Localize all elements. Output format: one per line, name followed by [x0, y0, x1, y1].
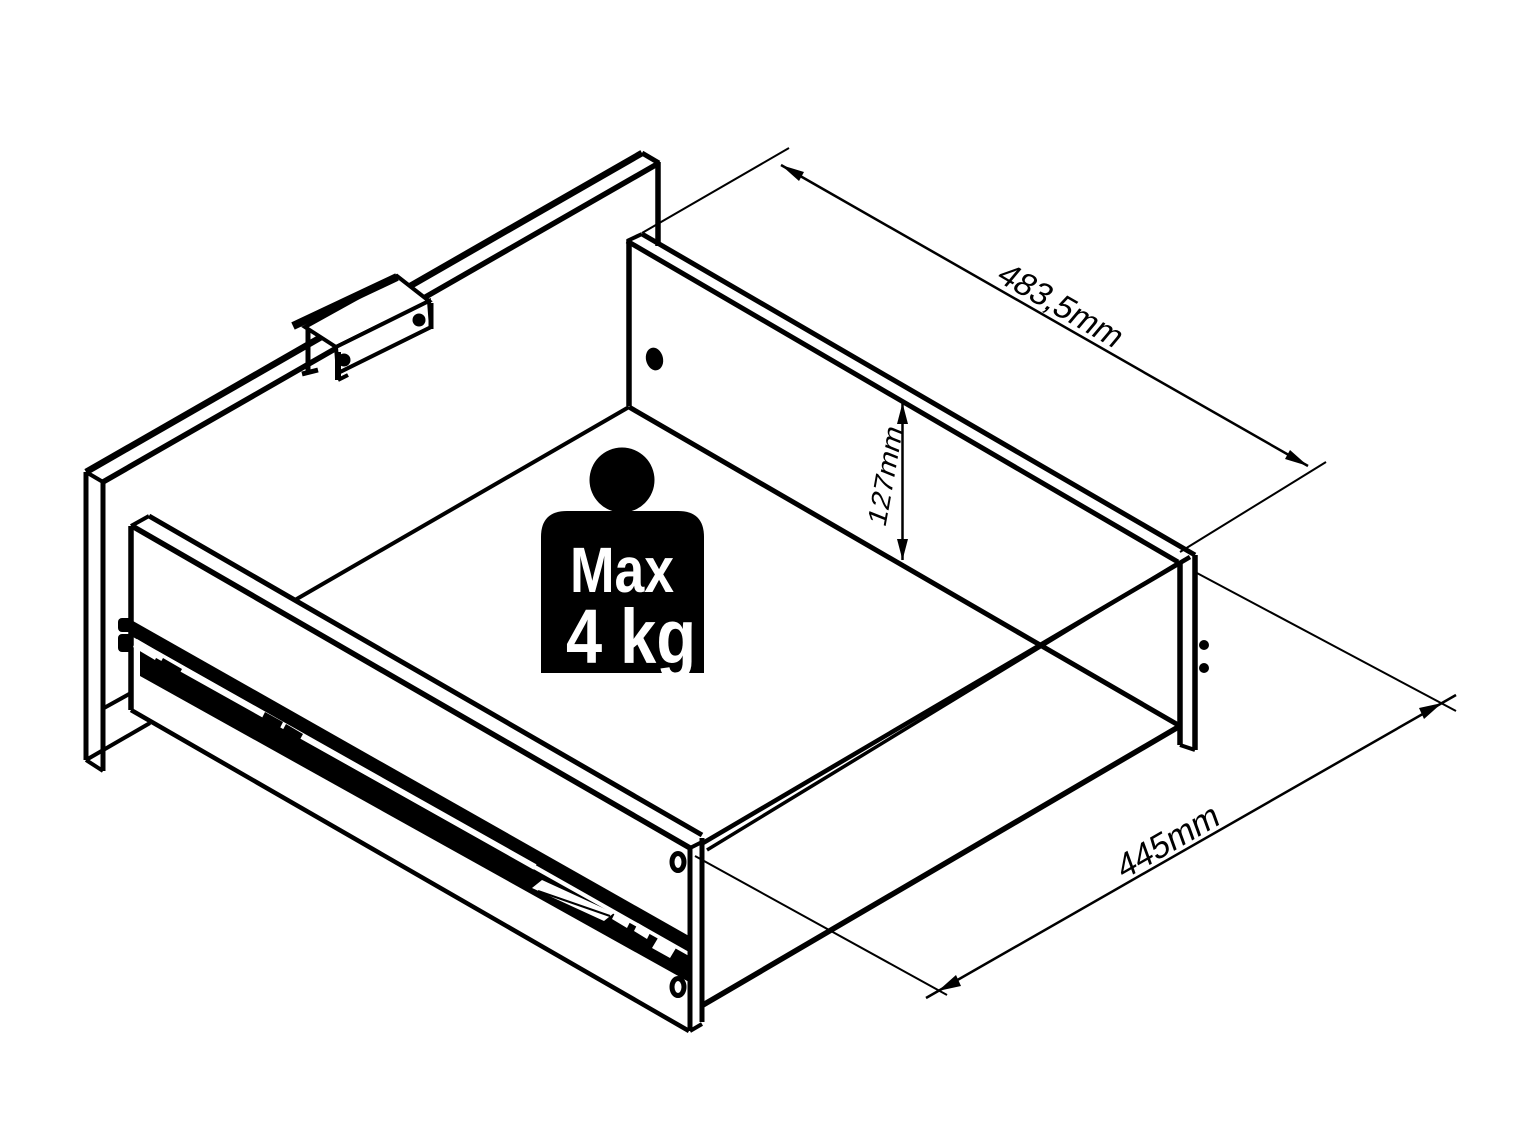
svg-text:4 kg: 4 kg — [566, 594, 696, 680]
svg-text:483,5mm: 483,5mm — [989, 257, 1132, 354]
svg-text:445mm: 445mm — [1113, 795, 1224, 888]
